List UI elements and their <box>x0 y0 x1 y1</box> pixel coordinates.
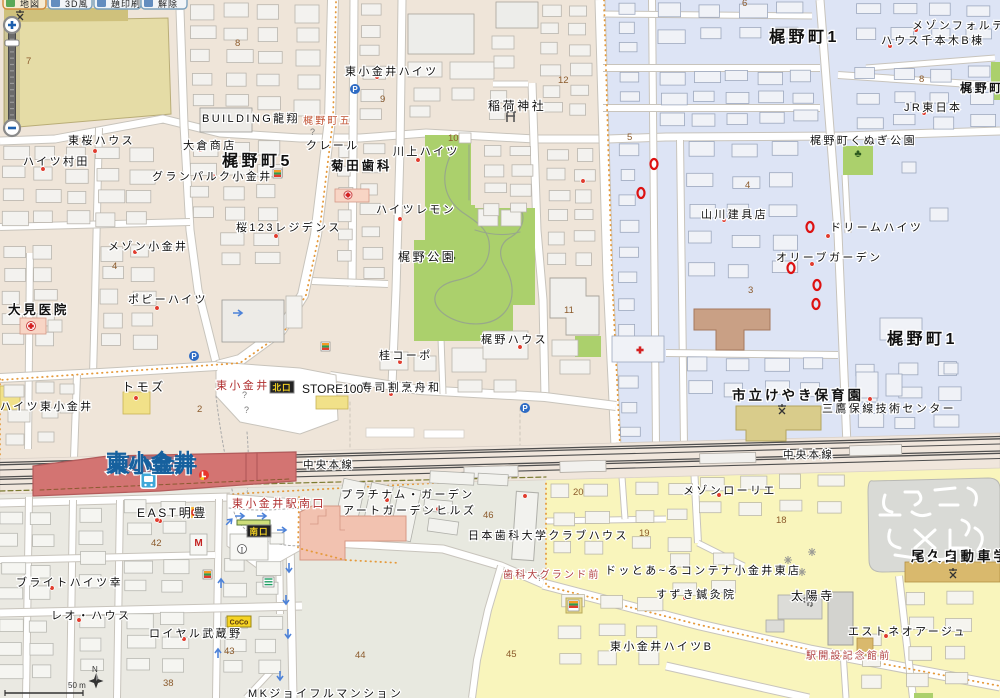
svg-text:ハイツ東小金井: ハイツ東小金井 <box>0 399 94 413</box>
svg-text:JR東日本: JR東日本 <box>904 100 962 114</box>
svg-text:メゾンフォルテ: メゾンフォルテ <box>912 19 1000 32</box>
svg-text:45: 45 <box>506 649 517 660</box>
svg-text:P: P <box>352 85 358 94</box>
svg-text:すずき鍼灸院: すずき鍼灸院 <box>656 587 736 601</box>
svg-text:38: 38 <box>163 678 174 689</box>
svg-text:8: 8 <box>235 38 240 49</box>
svg-text:梶野公園: 梶野公園 <box>398 250 456 264</box>
svg-text:43: 43 <box>224 646 235 657</box>
svg-text:レオ・ハウス: レオ・ハウス <box>51 609 131 622</box>
svg-text:46: 46 <box>483 510 494 521</box>
svg-text:グランパルク小金井: グランパルク小金井 <box>152 169 273 183</box>
svg-text:2: 2 <box>197 404 202 415</box>
svg-text:題印刷: 題印刷 <box>111 0 141 9</box>
svg-text:梶野町五: 梶野町五 <box>303 114 352 127</box>
svg-text:ブライトハイツ幸: ブライトハイツ幸 <box>16 575 123 589</box>
svg-text:ハイツ村田: ハイツ村田 <box>23 154 90 168</box>
svg-text:市立けやき保育園: 市立けやき保育園 <box>732 387 864 403</box>
svg-text:18: 18 <box>776 515 787 526</box>
svg-text:北口: 北口 <box>272 383 291 393</box>
svg-text:8: 8 <box>919 74 924 85</box>
svg-text:エストネオアージュ: エストネオアージュ <box>848 625 967 638</box>
svg-text:20: 20 <box>573 487 584 498</box>
svg-text:M: M <box>194 538 202 549</box>
svg-text:東小金井ハイツB: 東小金井ハイツB <box>610 639 713 653</box>
svg-text:中央本線: 中央本線 <box>783 448 834 461</box>
svg-text:ドリームハイツ: ドリームハイツ <box>830 221 923 234</box>
svg-text:5: 5 <box>627 132 632 143</box>
svg-text:オリーブガーデン: オリーブガーデン <box>776 250 883 264</box>
svg-text:ドッとあ~るコンテナ小金井東店: ドッとあ~るコンテナ小金井東店 <box>605 563 801 577</box>
svg-text:東小金井駅南口: 東小金井駅南口 <box>232 496 326 510</box>
svg-text:桜123レジデンス: 桜123レジデンス <box>236 220 342 234</box>
svg-text:10: 10 <box>448 133 459 144</box>
svg-text:44: 44 <box>355 650 366 661</box>
svg-text:P: P <box>191 352 197 361</box>
svg-text:メゾン小金井: メゾン小金井 <box>108 239 188 253</box>
svg-text:3D風: 3D風 <box>65 0 89 9</box>
svg-text:アートガーデンヒルズ: アートガーデンヒルズ <box>343 503 476 517</box>
svg-text:?: ? <box>244 405 249 415</box>
svg-text:地図: 地図 <box>20 0 40 9</box>
svg-text:STORE100: STORE100 <box>302 382 363 396</box>
svg-text:P: P <box>522 404 528 413</box>
svg-text:三鷹保線技術センター: 三鷹保線技術センター <box>822 401 956 415</box>
svg-text:4: 4 <box>112 261 117 272</box>
svg-text:?: ? <box>310 127 315 137</box>
svg-text:トモズ: トモズ <box>122 379 166 394</box>
svg-text:9: 9 <box>380 94 385 105</box>
svg-text:クレール: クレール <box>306 139 360 152</box>
svg-text:19: 19 <box>639 528 650 539</box>
svg-text:50 m: 50 m <box>68 681 86 690</box>
svg-text:梶野ハウス: 梶野ハウス <box>481 332 548 346</box>
svg-text:山川建具店: 山川建具店 <box>701 207 768 221</box>
svg-text:大倉商店: 大倉商店 <box>183 138 237 152</box>
svg-text:ポピーハイツ: ポピーハイツ <box>128 293 208 306</box>
svg-text:3: 3 <box>748 285 753 296</box>
svg-text:7: 7 <box>26 56 31 67</box>
svg-text:梶野町ま: 梶野町ま <box>960 80 1000 95</box>
svg-text:東小金井ハイツ: 東小金井ハイツ <box>345 64 439 78</box>
svg-text:菊田歯科: 菊田歯科 <box>330 158 392 173</box>
svg-text:解除: 解除 <box>158 0 178 9</box>
svg-text:川上ハイツ: 川上ハイツ <box>393 145 460 158</box>
svg-text:尾久自動車学校: 尾久自動車学校 <box>911 548 1000 564</box>
svg-text:中央本線: 中央本線 <box>303 458 354 471</box>
svg-text:南口: 南口 <box>249 527 268 537</box>
svg-text:メゾンローリエ: メゾンローリエ <box>683 484 777 497</box>
svg-text:11: 11 <box>564 305 574 316</box>
svg-text:♣: ♣ <box>854 148 861 160</box>
svg-text:プラチナム・ガーデン: プラチナム・ガーデン <box>341 487 475 501</box>
svg-text:6: 6 <box>742 0 747 9</box>
svg-text:大見医院: 大見医院 <box>8 302 69 317</box>
svg-text:CoCo: CoCo <box>230 620 249 627</box>
svg-text:BUILDING龍翔: BUILDING龍翔 <box>202 111 300 125</box>
svg-text:歯科大グランド前: 歯科大グランド前 <box>503 568 601 581</box>
svg-text:稲荷神社: 稲荷神社 <box>488 98 546 113</box>
svg-text:42: 42 <box>151 538 162 549</box>
svg-text:MKジョイフルマンション: MKジョイフルマンション <box>248 688 403 698</box>
svg-text:太陽寺: 太陽寺 <box>791 588 835 603</box>
svg-text:EAST明豊: EAST明豊 <box>137 506 208 520</box>
svg-text:東小金井: 東小金井 <box>106 450 196 474</box>
svg-text:12: 12 <box>558 75 569 86</box>
svg-text:ハイツレモン: ハイツレモン <box>376 204 456 216</box>
svg-text:N: N <box>92 665 98 674</box>
svg-text:ロイヤル武蔵野: ロイヤル武蔵野 <box>149 627 242 640</box>
svg-text:日本歯科大学クラブハウス: 日本歯科大学クラブハウス <box>468 528 629 542</box>
svg-text:東桜ハウス: 東桜ハウス <box>68 133 135 147</box>
svg-text:梶野町1: 梶野町1 <box>769 27 840 46</box>
svg-text:梶野町くぬぎ公園: 梶野町くぬぎ公園 <box>810 133 917 147</box>
svg-text:ハウス千本木B棟: ハウス千本木B棟 <box>881 33 985 47</box>
svg-text:I: I <box>241 546 244 555</box>
svg-text:梶野町1: 梶野町1 <box>887 329 958 348</box>
svg-text:寿司割烹舟和: 寿司割烹舟和 <box>361 380 441 394</box>
svg-text:4: 4 <box>745 180 750 191</box>
svg-text:駅開設記念館前: 駅開設記念館前 <box>806 649 891 662</box>
svg-text:桂コーポ: 桂コーポ <box>379 348 433 362</box>
svg-text:梶野町5: 梶野町5 <box>222 151 293 170</box>
